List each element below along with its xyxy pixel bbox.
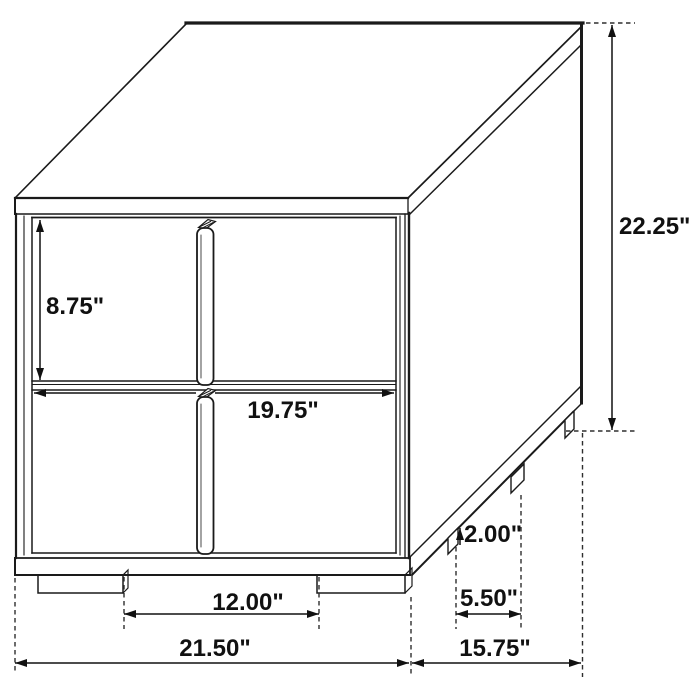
dim-label-side-leg-spacing: 5.50" <box>460 585 518 612</box>
handle-bottom-drawer <box>197 389 216 555</box>
dim-overall-height: 22.25" <box>566 23 690 431</box>
dim-label-drawer-width: 19.75" <box>247 397 318 424</box>
diagram-canvas: 19.75" 8.75" 22.25" <box>0 0 700 700</box>
handle-top-drawer <box>197 220 216 386</box>
handle-bottom-bar <box>197 397 214 554</box>
handle-top-bar <box>197 228 214 385</box>
front-right-leg-side <box>405 568 412 593</box>
dim-drawer-height: 8.75" <box>40 220 104 380</box>
cabinet-top <box>15 23 583 214</box>
dim-front-leg-spacing: 12.00" <box>124 577 319 629</box>
side-corner-leg <box>565 411 574 438</box>
cabinet-right-side <box>409 24 582 575</box>
dim-label-overall-height: 22.25" <box>619 213 690 240</box>
nightstand-dimension-diagram: 19.75" 8.75" 22.25" <box>0 0 700 700</box>
dim-label-overall-width: 21.50" <box>179 635 250 662</box>
dim-leg-height: 2.00" <box>460 521 522 548</box>
dim-label-overall-depth: 15.75" <box>459 635 530 662</box>
dim-side-leg-spacing: 5.50" <box>456 495 521 629</box>
top-right-lower-edge <box>410 44 582 214</box>
dim-label-leg-height: 2.00" <box>464 521 522 548</box>
base-and-legs <box>15 558 412 593</box>
front-right-leg <box>317 575 405 593</box>
dim-label-front-leg-spacing: 12.00" <box>212 589 283 616</box>
top-right-upper-edge <box>408 26 582 198</box>
dim-label-drawer-height: 8.75" <box>46 293 104 320</box>
top-left-edge <box>15 23 187 198</box>
side-base-bottom-edge <box>412 412 573 575</box>
front-left-leg <box>38 575 123 593</box>
